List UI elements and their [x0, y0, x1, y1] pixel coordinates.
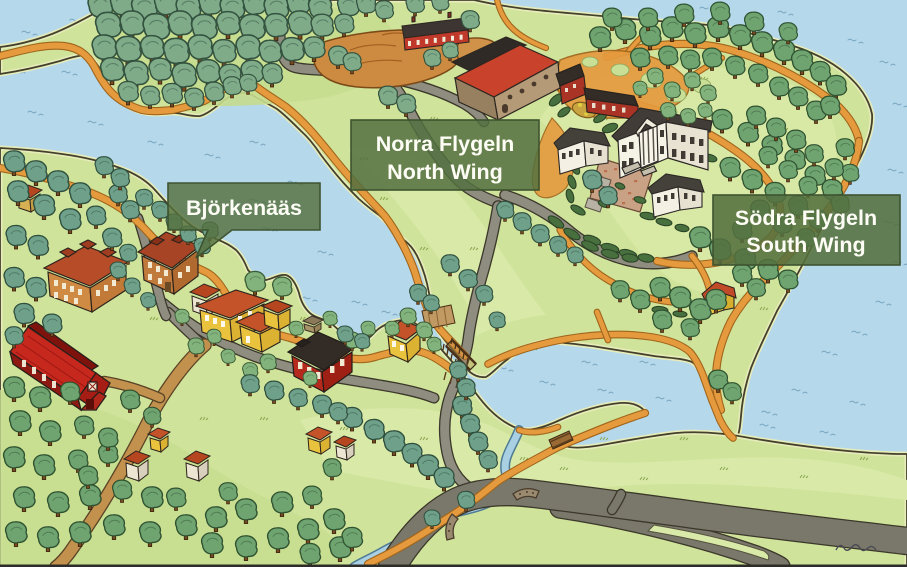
- svg-text:Södra Flygeln: Södra Flygeln: [735, 206, 877, 230]
- svg-text:South Wing: South Wing: [746, 233, 865, 257]
- svg-text:Norra Flygeln: Norra Flygeln: [376, 132, 515, 156]
- svg-text:North Wing: North Wing: [387, 160, 503, 184]
- svg-text:Björkenääs: Björkenääs: [186, 196, 302, 220]
